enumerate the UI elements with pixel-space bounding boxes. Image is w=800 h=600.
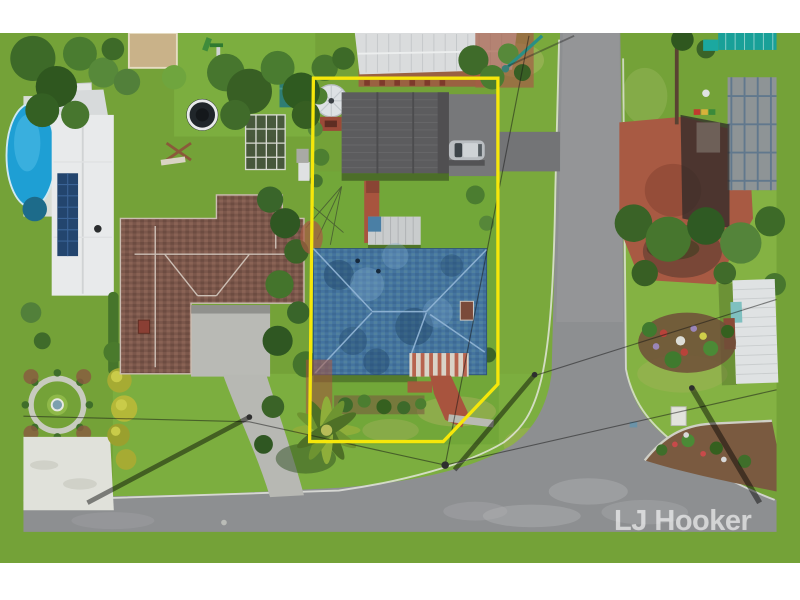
pool-umbrella	[23, 197, 47, 221]
small-white-shed	[298, 162, 309, 181]
wheelie-bins	[694, 109, 716, 115]
white-paved-court	[23, 437, 113, 510]
sand-court	[129, 33, 177, 68]
left-house-courtyard	[191, 305, 270, 377]
aerial-photo	[0, 33, 800, 563]
satellite-dish	[94, 225, 102, 233]
garage-roof	[342, 92, 449, 180]
trampoline	[186, 99, 218, 131]
birdbath	[676, 336, 685, 345]
pergola	[246, 115, 286, 170]
solar-panels	[57, 173, 78, 256]
agency-watermark: LJ Hooker	[614, 505, 751, 538]
scaffold-building	[728, 77, 777, 190]
middle-garden-bed	[638, 313, 736, 373]
manhole-cover	[221, 520, 227, 526]
front-garden-bed	[334, 394, 426, 414]
house-chimney	[460, 301, 473, 320]
parked-car	[449, 140, 485, 165]
teal-construction-roof	[718, 33, 776, 50]
formal-garden	[22, 369, 94, 441]
letterbox	[671, 407, 686, 426]
aerial-photo-canvas	[0, 33, 800, 563]
chimney	[138, 320, 149, 333]
driveway-crossover	[498, 132, 560, 172]
patio-roof	[409, 353, 468, 377]
